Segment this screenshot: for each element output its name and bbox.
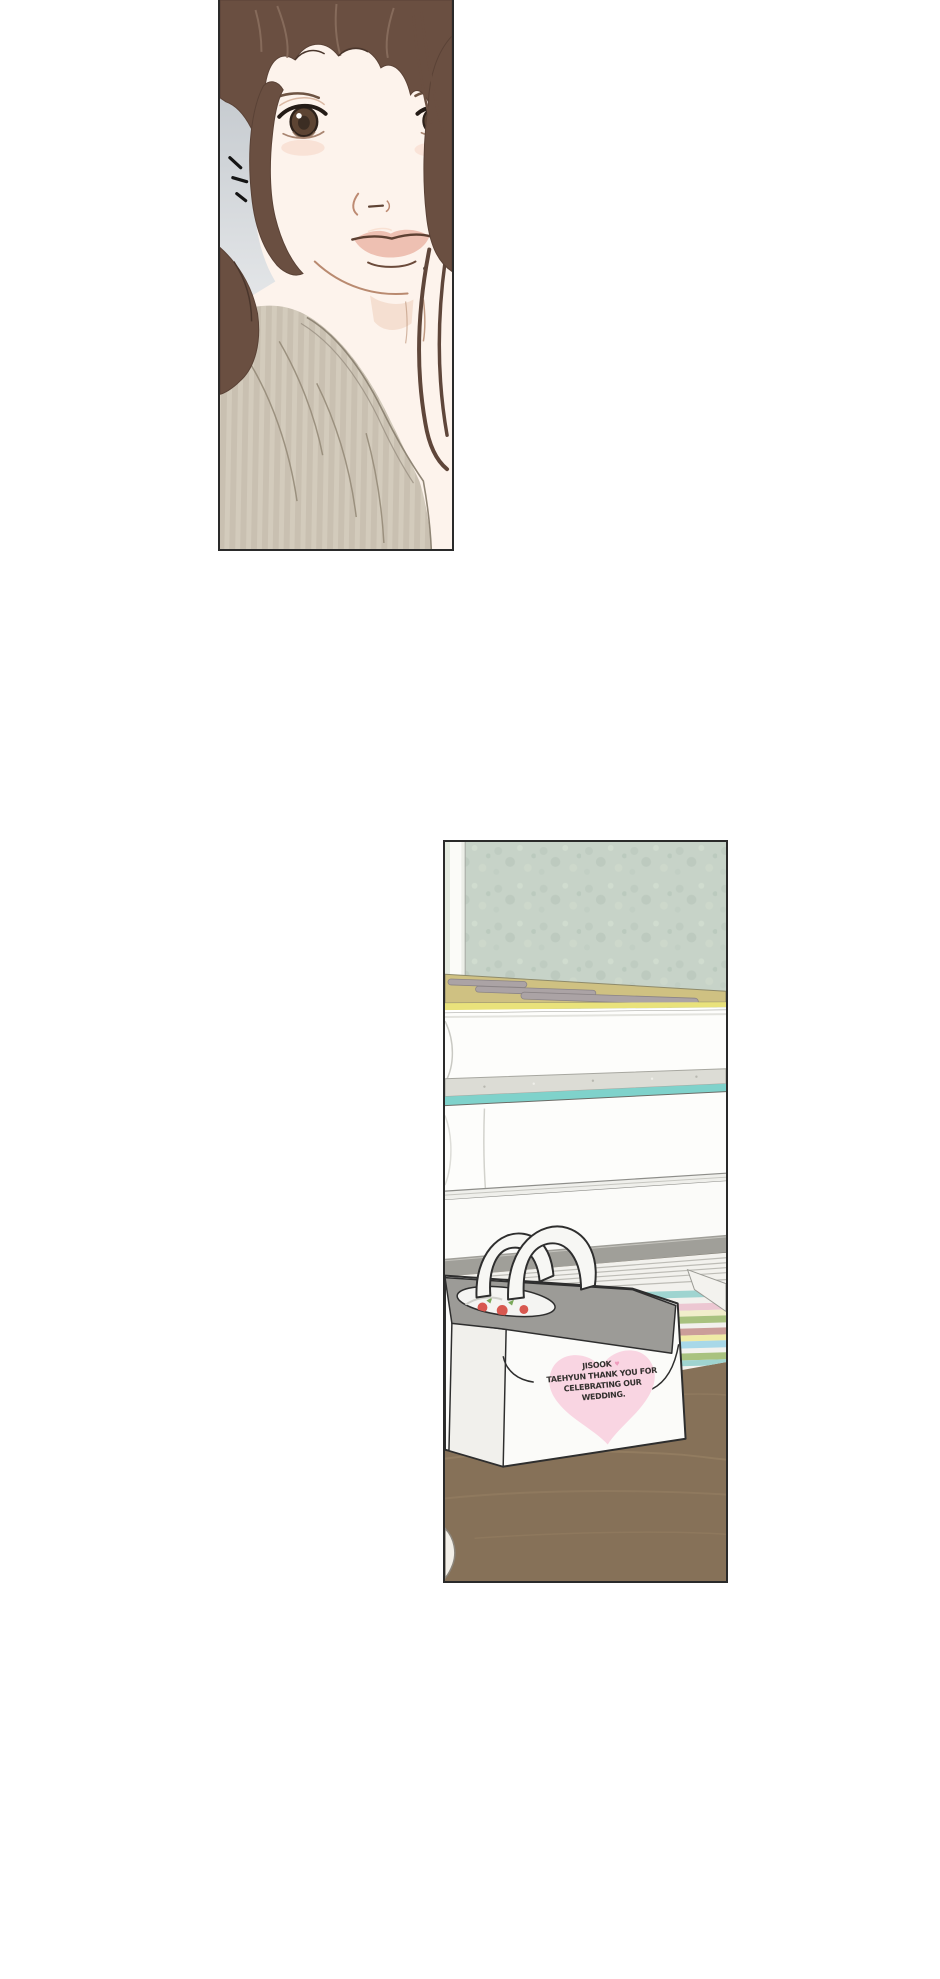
- portrait-panel: [218, 0, 454, 551]
- heart-icon: ♥: [614, 1361, 620, 1368]
- strawberry: [519, 1305, 528, 1314]
- gift-art: JISOOK♥ TAEHYUN THANK YOU FOR CELEBRATIN…: [445, 842, 726, 1581]
- strawberry: [497, 1305, 508, 1316]
- shelf-box-2: [445, 1093, 726, 1200]
- portrait-art: [220, 0, 452, 549]
- blush-left: [281, 140, 324, 156]
- window-frame-strip: [445, 842, 465, 983]
- gift-panel: JISOOK♥ TAEHYUN THANK YOU FOR CELEBRATIN…: [443, 840, 728, 1583]
- gift-box-left-face: [449, 1322, 506, 1466]
- webtoon-page: JISOOK♥ TAEHYUN THANK YOU FOR CELEBRATIN…: [0, 0, 940, 1979]
